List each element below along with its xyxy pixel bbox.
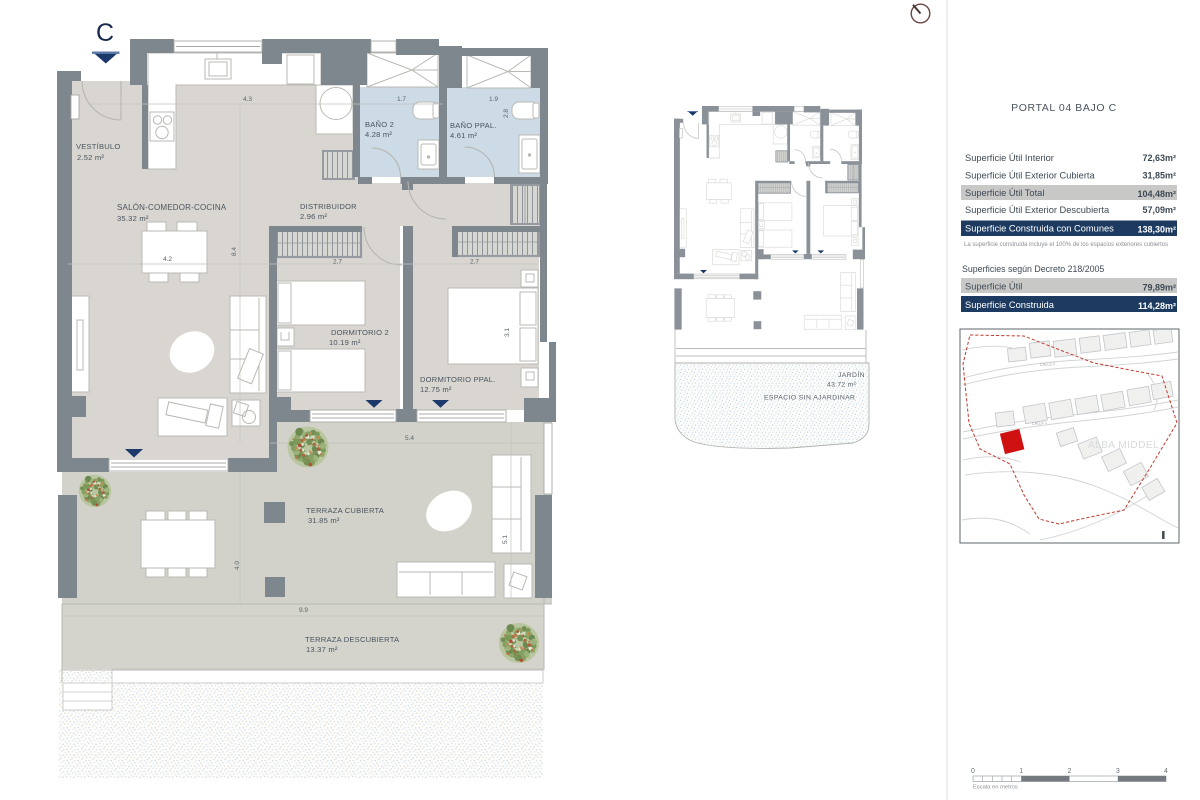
svg-text:2.96 m²: 2.96 m² bbox=[300, 212, 327, 221]
svg-text:31.85 m²: 31.85 m² bbox=[308, 516, 340, 525]
svg-text:PORTAL 04 BAJO C: PORTAL 04 BAJO C bbox=[1011, 102, 1117, 114]
svg-text:Superficies según Decreto 218/: Superficies según Decreto 218/2005 bbox=[962, 264, 1104, 274]
svg-text:1.9: 1.9 bbox=[489, 96, 498, 103]
svg-text:JARDÍN: JARDÍN bbox=[838, 370, 865, 379]
svg-text:SALÓN-COMEDOR-COCINA: SALÓN-COMEDOR-COCINA bbox=[117, 203, 227, 212]
svg-text:Superficie Útil Total: Superficie Útil Total bbox=[965, 188, 1044, 198]
svg-text:4: 4 bbox=[1164, 768, 1168, 775]
svg-text:4.3: 4.3 bbox=[243, 96, 252, 103]
svg-text:ESPACIO SIN AJARDINAR: ESPACIO SIN AJARDINAR bbox=[764, 395, 855, 402]
svg-text:13.37 m²: 13.37 m² bbox=[306, 645, 338, 654]
svg-text:Superficie Útil: Superficie Útil bbox=[965, 282, 1022, 292]
svg-text:4.2: 4.2 bbox=[163, 256, 172, 263]
svg-text:Superficie Útil Exterior Descu: Superficie Útil Exterior Descubierta bbox=[965, 205, 1110, 215]
svg-text:DORMITORIO PPAL.: DORMITORIO PPAL. bbox=[420, 375, 496, 384]
svg-text:138,30m²: 138,30m² bbox=[1137, 225, 1176, 235]
svg-text:Superficie Útil Interior: Superficie Útil Interior bbox=[965, 153, 1054, 163]
svg-text:2.7: 2.7 bbox=[333, 259, 342, 266]
svg-text:5.1: 5.1 bbox=[502, 535, 509, 544]
svg-text:4.28 m²: 4.28 m² bbox=[365, 130, 392, 139]
svg-text:5.4: 5.4 bbox=[405, 435, 414, 442]
svg-text:35.32 m²: 35.32 m² bbox=[117, 214, 149, 223]
svg-text:Superficie Construida con Comu: Superficie Construida con Comunes bbox=[965, 224, 1114, 234]
svg-text:Superficie Construida: Superficie Construida bbox=[965, 300, 1055, 310]
svg-text:57,09m²: 57,09m² bbox=[1142, 205, 1176, 215]
svg-text:2: 2 bbox=[1068, 768, 1072, 775]
svg-text:12.75 m²: 12.75 m² bbox=[420, 385, 452, 394]
svg-text:114,28m²: 114,28m² bbox=[1138, 301, 1176, 311]
svg-text:DORMITORIO 2: DORMITORIO 2 bbox=[331, 328, 389, 337]
svg-text:1: 1 bbox=[1019, 768, 1023, 775]
svg-text:C: C bbox=[96, 19, 114, 47]
svg-text:1.7: 1.7 bbox=[397, 96, 406, 103]
svg-text:4.61 m²: 4.61 m² bbox=[450, 131, 477, 140]
svg-text:3: 3 bbox=[1116, 768, 1120, 775]
svg-text:VESTÍBULO: VESTÍBULO bbox=[76, 142, 120, 151]
svg-text:TERRAZA DESCUBIERTA: TERRAZA DESCUBIERTA bbox=[305, 635, 400, 644]
svg-text:72,63m²: 72,63m² bbox=[1142, 153, 1176, 163]
svg-text:8.4: 8.4 bbox=[231, 247, 238, 256]
svg-text:Escala en metros: Escala en metros bbox=[973, 785, 1018, 791]
svg-text:31,85m²: 31,85m² bbox=[1142, 171, 1176, 181]
svg-text:4.0: 4.0 bbox=[234, 561, 241, 570]
svg-text:2.7: 2.7 bbox=[470, 259, 479, 266]
svg-text:TERRAZA CUBIERTA: TERRAZA CUBIERTA bbox=[306, 506, 385, 515]
svg-text:0: 0 bbox=[971, 768, 975, 775]
svg-text:10.19 m²: 10.19 m² bbox=[329, 338, 361, 347]
svg-text:104,48m²: 104,48m² bbox=[1137, 189, 1176, 199]
svg-text:Superficie Útil Exterior Cubie: Superficie Útil Exterior Cubierta bbox=[965, 171, 1096, 181]
svg-text:La superficie construida inclu: La superficie construida incluye el 100%… bbox=[964, 242, 1168, 248]
svg-text:79,89m²: 79,89m² bbox=[1142, 283, 1176, 293]
svg-text:DISTRIBUIDOR: DISTRIBUIDOR bbox=[300, 202, 357, 211]
svg-text:43.72 m²: 43.72 m² bbox=[827, 382, 857, 389]
svg-text:BAÑO PPAL.: BAÑO PPAL. bbox=[450, 121, 497, 130]
svg-text:BAÑO 2: BAÑO 2 bbox=[365, 120, 394, 129]
svg-text:3.1: 3.1 bbox=[504, 328, 511, 337]
svg-text:2.8: 2.8 bbox=[503, 109, 510, 118]
svg-text:ALBA MIDDEL: ALBA MIDDEL bbox=[1088, 440, 1159, 451]
svg-text:9.9: 9.9 bbox=[299, 607, 308, 614]
svg-text:2.52 m²: 2.52 m² bbox=[77, 153, 104, 162]
